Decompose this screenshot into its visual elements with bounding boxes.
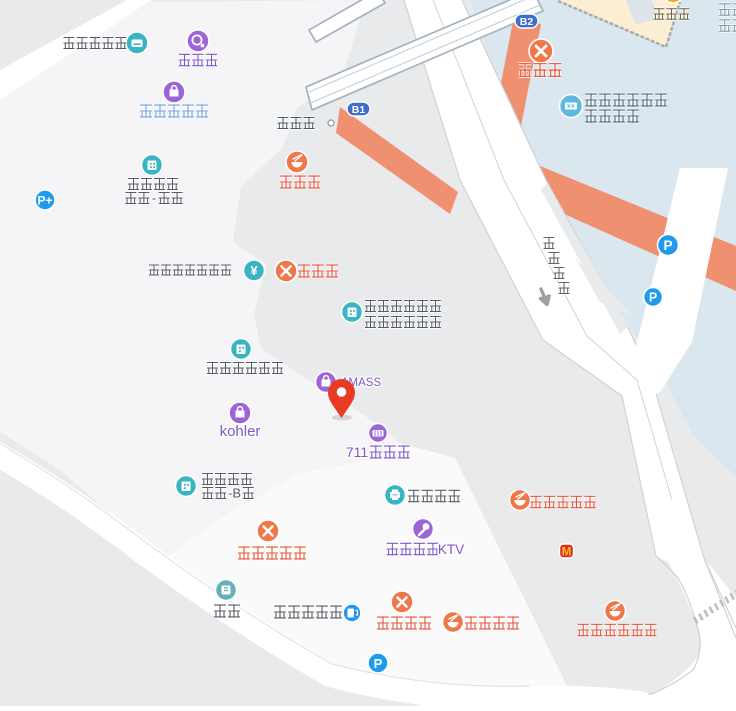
svg-text:711: 711 bbox=[346, 444, 369, 460]
svg-text:B2: B2 bbox=[520, 16, 534, 28]
svg-text:P+: P+ bbox=[37, 194, 52, 208]
svg-text:-B: -B bbox=[228, 486, 241, 501]
svg-text:P: P bbox=[374, 656, 383, 671]
svg-text:P: P bbox=[663, 238, 672, 253]
svg-text:kohler: kohler bbox=[220, 423, 261, 440]
svg-text:¥: ¥ bbox=[250, 263, 258, 278]
svg-text:M: M bbox=[562, 547, 572, 559]
svg-text:KTV: KTV bbox=[438, 542, 464, 557]
svg-text:-: - bbox=[152, 191, 156, 206]
svg-text:B1: B1 bbox=[352, 104, 366, 116]
svg-text:P: P bbox=[649, 291, 657, 305]
